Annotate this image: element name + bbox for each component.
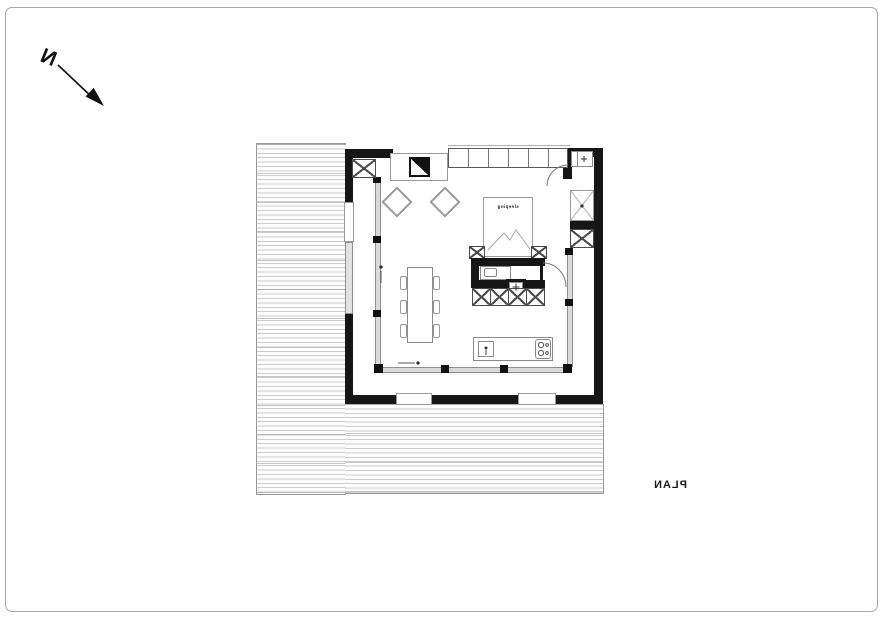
glazing-marker	[374, 364, 383, 373]
window-left-opening	[344, 202, 354, 242]
bed-label: sleeping	[489, 204, 527, 209]
north-arrowhead-icon	[86, 88, 105, 106]
dining-chair	[433, 276, 440, 290]
north-arrow: N	[30, 38, 114, 116]
north-label: N	[37, 44, 60, 71]
wood-deck-left	[256, 143, 346, 495]
glazing-marker	[565, 299, 573, 306]
shower-floor	[570, 190, 594, 221]
wood-deck-bottom	[345, 404, 604, 494]
storage-x-cell	[508, 288, 527, 306]
eave-line	[448, 145, 570, 146]
floor-plan-sheet: N sleeping	[0, 0, 889, 628]
plan-title: PLAN	[648, 479, 692, 491]
dining-table	[407, 267, 433, 343]
glazing-bottom	[377, 367, 567, 373]
island-sink	[478, 341, 494, 357]
glazing-marker	[441, 365, 449, 373]
glazing-marker	[373, 236, 381, 243]
window-left-glazed	[345, 242, 353, 314]
wall-bottom	[345, 395, 603, 404]
storage-x-cell	[526, 288, 545, 306]
dining-chair	[400, 276, 407, 290]
window-bottom-1	[396, 393, 432, 405]
wall-right	[594, 150, 603, 404]
bathroom-wall-top	[471, 258, 545, 266]
glazing-marker	[373, 310, 381, 317]
glazing-marker	[500, 365, 508, 373]
sheet-border	[5, 7, 878, 612]
glazing-marker	[563, 364, 572, 373]
window-bottom-2	[518, 393, 556, 405]
toilet	[571, 151, 593, 167]
fireplace-hearth-icon	[409, 157, 430, 177]
storage-x-cell	[472, 288, 491, 306]
dining-chair	[400, 324, 407, 338]
column-top-left	[352, 159, 376, 178]
column-right	[570, 229, 594, 248]
dining-chair	[433, 324, 440, 338]
glazing-marker	[565, 248, 573, 255]
bathroom-door-leaf	[540, 263, 543, 288]
storage-x-cell	[490, 288, 509, 306]
glazing-right	[567, 248, 573, 367]
cooktop	[535, 339, 551, 359]
wall-left-lower	[345, 314, 353, 395]
bathroom-sink	[484, 268, 497, 277]
glazing-left	[375, 177, 381, 369]
wall-band	[570, 221, 603, 229]
toilet-divider	[577, 152, 578, 166]
wardrobe	[448, 148, 568, 168]
dining-chair	[433, 300, 440, 314]
dining-chair	[400, 300, 407, 314]
